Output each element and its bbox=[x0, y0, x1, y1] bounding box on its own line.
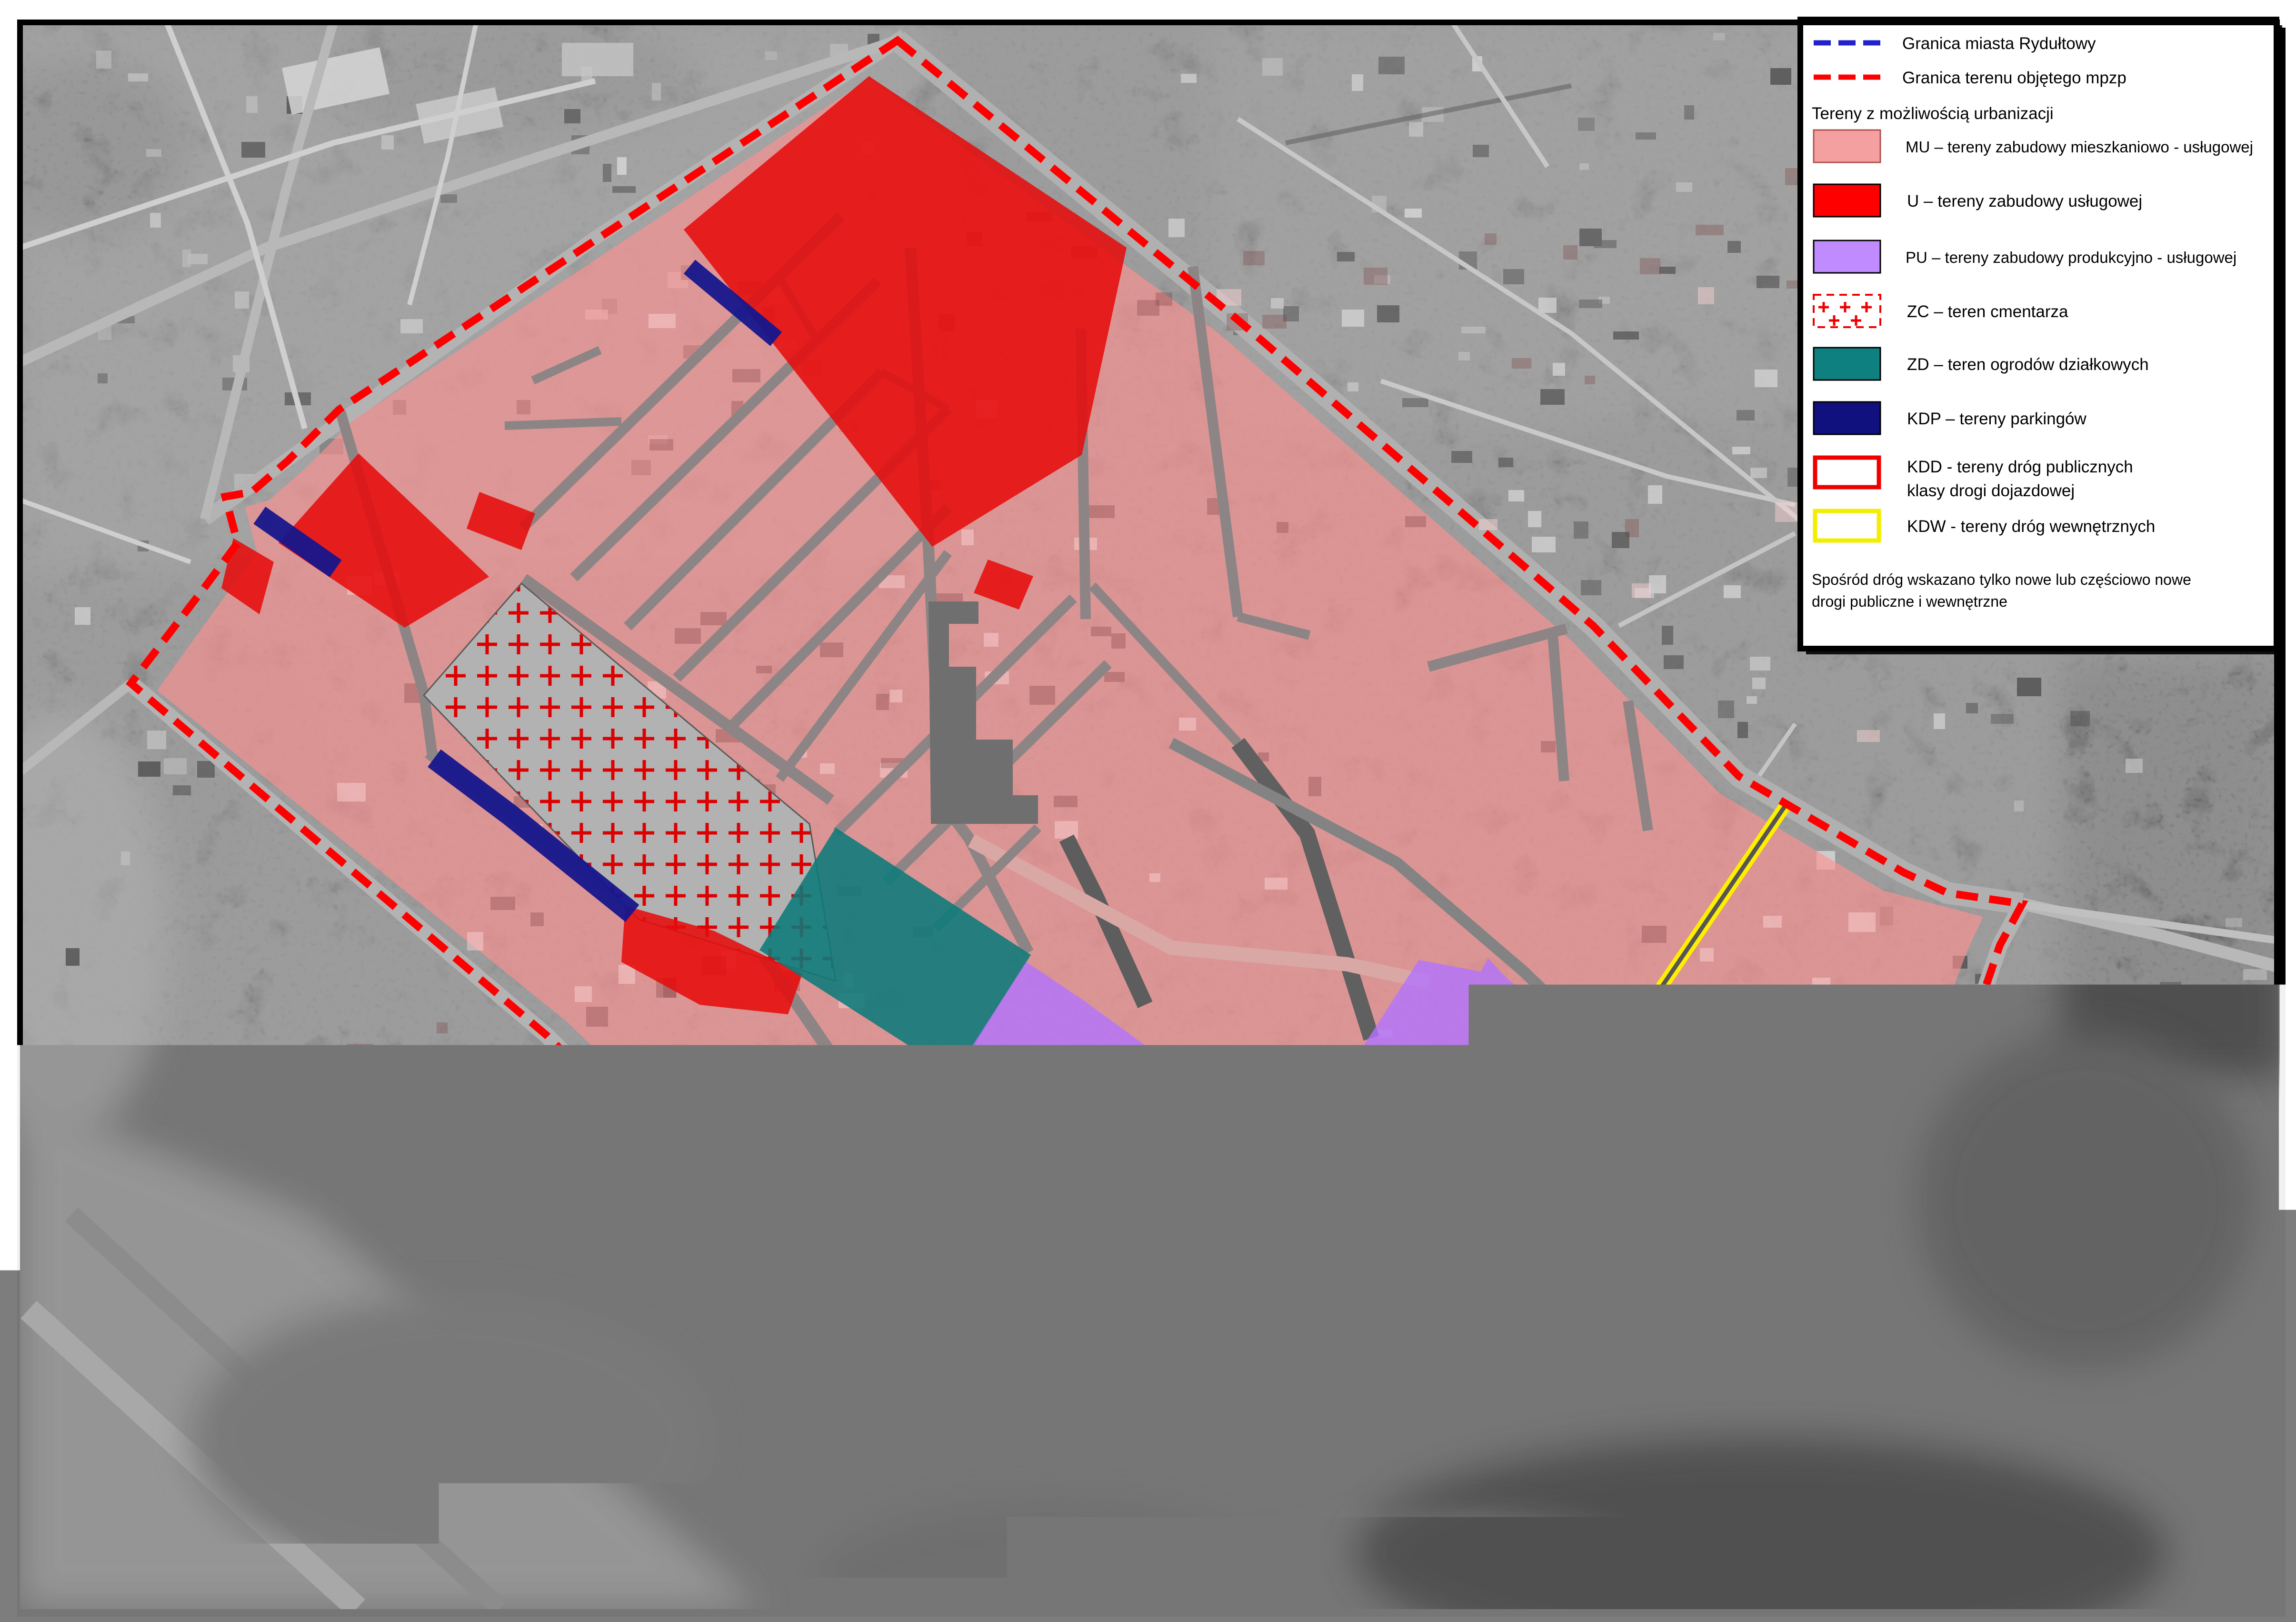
svg-text:Granica miasta Rydułtowy: Granica miasta Rydułtowy bbox=[1902, 34, 2096, 53]
svg-text:SKALA: SKALA bbox=[2174, 1537, 2216, 1552]
svg-text:44-203 RYBNIK UL. STRZELECKA 7: 44-203 RYBNIK UL. STRZELECKA 78 bbox=[1897, 1574, 2225, 1589]
svg-text:PU – tereny zabudowy produkcyj: PU – tereny zabudowy produkcyjno - usług… bbox=[1906, 249, 2236, 266]
svg-text:Spośród dróg wskazano tylko no: Spośród dróg wskazano tylko nowe lub czę… bbox=[1812, 571, 2191, 588]
svg-text:Z MOŻLIWOŚCIĄ URBANIZACJI: Z MOŻLIWOŚCIĄ URBANIZACJI bbox=[1741, 1516, 2081, 1541]
svg-text:MU – tereny zabudowy mieszkani: MU – tereny zabudowy mieszkaniowo - usłu… bbox=[1906, 138, 2253, 156]
svg-text:NAZWA MAPY: NAZWA MAPY bbox=[1713, 1461, 1792, 1474]
svg-text:DLA OBSZARU OZNACZONEGO SYMBOL: DLA OBSZARU OZNACZONEGO SYMBOLEM MP/19 bbox=[1825, 1437, 2154, 1452]
svg-text:U – tereny zabudowy usługowej: U – tereny zabudowy usługowej bbox=[1907, 192, 2142, 210]
svg-text:E-MAIL : GEOLOGIC1@WP.PL: E-MAIL : GEOLOGIC1@WP.PL bbox=[1897, 1592, 2161, 1606]
svg-text:KDP – tereny parkingów: KDP – tereny parkingów bbox=[1907, 410, 2087, 428]
svg-text:2: 2 bbox=[2188, 1497, 2206, 1533]
svg-text:klasy drogi dojazdowej: klasy drogi dojazdowej bbox=[1907, 481, 2075, 500]
svg-text:ZC – teren cmentarza: ZC – teren cmentarza bbox=[1907, 302, 2068, 321]
svg-text:KDW - tereny dróg wewnętrznych: KDW - tereny dróg wewnętrznych bbox=[1907, 517, 2155, 536]
svg-text:drogi publiczne i wewnętrzne: drogi publiczne i wewnętrzne bbox=[1812, 593, 2007, 610]
svg-text:KDD - tereny dróg publicznych: KDD - tereny dróg publicznych bbox=[1907, 458, 2133, 476]
svg-text:ZD – teren ogrodów działkowych: ZD – teren ogrodów działkowych bbox=[1907, 355, 2149, 374]
svg-text:1:4000: 1:4000 bbox=[2176, 1555, 2215, 1570]
svg-text:WSKAZANIE TERENÓW: WSKAZANIE TERENÓW bbox=[1783, 1481, 2039, 1506]
svg-text:GEOLOGIC: GEOLOGIC bbox=[1717, 1575, 1878, 1604]
svg-text:Tereny z możliwością urbanizac: Tereny z możliwością urbanizacji bbox=[1812, 104, 2054, 123]
svg-text:NR MAPY: NR MAPY bbox=[2125, 1461, 2183, 1475]
svg-text:PROGNOZA ODDZIAŁYWANIA NA ŚROD: PROGNOZA ODDZIAŁYWANIA NA ŚRODOWISKO MPZ… bbox=[1741, 1416, 2238, 1431]
svg-text:Granica terenu objętego mpzp: Granica terenu objętego mpzp bbox=[1902, 69, 2126, 87]
svg-text:SIERPIEŃ 2022: SIERPIEŃ 2022 bbox=[1713, 1548, 1795, 1561]
